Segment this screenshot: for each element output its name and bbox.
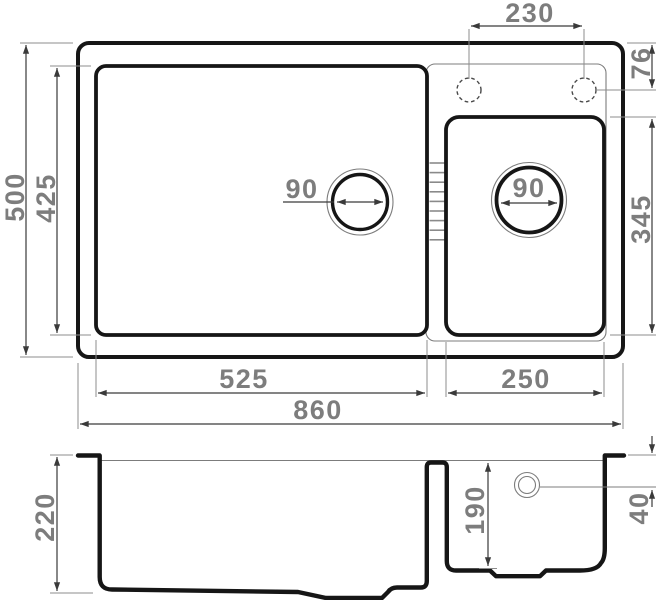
dim-left-drain-diameter: 90 (285, 174, 318, 204)
faucet-hole-left (457, 78, 481, 102)
dim-section-left-depth: 220 (30, 492, 60, 542)
dim-faucet-offset: 76 (626, 46, 656, 79)
sink-technical-drawing: 230 76 500 425 90 90 345 525 25 (0, 0, 657, 600)
section-profile (78, 456, 624, 599)
drawing-svg: 230 76 500 425 90 90 345 525 25 (0, 0, 657, 600)
left-bowl-outline (96, 66, 427, 335)
dim-right-bowl-depth: 345 (626, 194, 656, 244)
dim-faucet-spacing: 230 (505, 0, 555, 28)
right-bowl-outline (446, 117, 604, 335)
section-view (78, 456, 656, 599)
faucet-hole-right (572, 78, 596, 102)
dim-right-bowl-width: 250 (501, 364, 551, 394)
dim-overall-width: 860 (293, 395, 343, 425)
divider-ribs (430, 163, 445, 240)
section-drain-inner (519, 477, 536, 494)
dim-left-bowl-depth: 425 (31, 173, 61, 223)
dim-right-drain-diameter: 90 (512, 173, 545, 203)
dim-left-bowl-width: 525 (219, 364, 269, 394)
dim-section-right-depth: 190 (460, 485, 490, 535)
dim-section-drain-offset: 40 (624, 491, 654, 524)
dim-overall-depth: 500 (0, 172, 30, 222)
